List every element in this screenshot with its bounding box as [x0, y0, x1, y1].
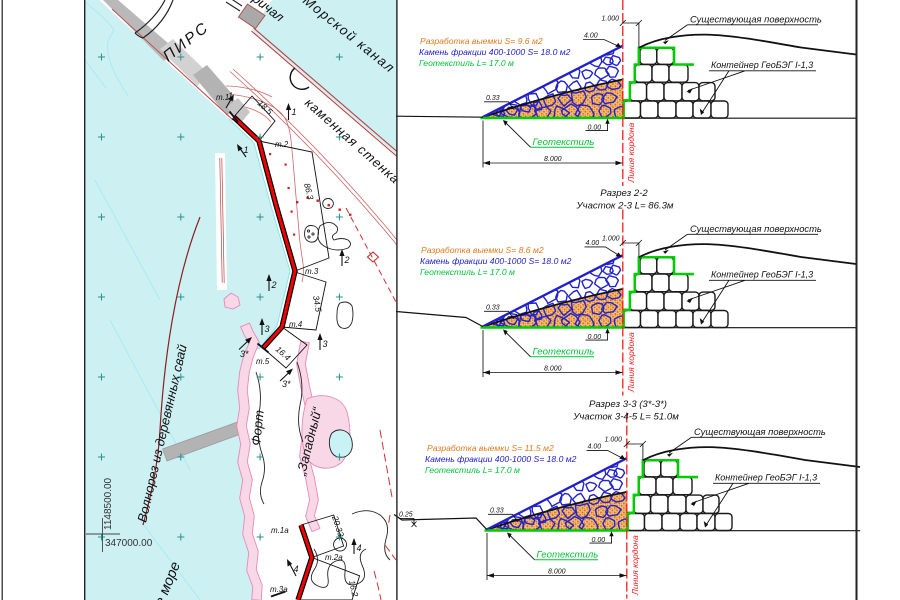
svg-text:Камень фракции 400-1000 S= 18: Камень фракции 400-1000 S= 18.0 м2: [420, 256, 572, 266]
svg-text:Участок 2-3 L= 86.3м: Участок 2-3 L= 86.3м: [575, 201, 673, 212]
svg-text:Геотекстиль L= 17.0 м: Геотекстиль L= 17.0 м: [425, 465, 520, 475]
svg-text:1: 1: [228, 91, 233, 101]
svg-text:4.00: 4.00: [584, 33, 598, 40]
svg-text:347000.00: 347000.00: [105, 538, 153, 549]
svg-text:4.00: 4.00: [586, 240, 600, 247]
svg-text:т.1а: т.1а: [271, 526, 289, 535]
svg-text:1148500.00: 1148500.00: [103, 477, 114, 530]
svg-text:Разрез 2-2: Разрез 2-2: [600, 188, 648, 199]
svg-text:1: 1: [292, 107, 297, 117]
svg-text:4: 4: [294, 564, 299, 574]
svg-text:3: 3: [323, 339, 328, 349]
svg-text:Участок 3-4-5 L= 51.0м: Участок 3-4-5 L= 51.0м: [572, 412, 679, 423]
svg-text:Разработка выемки S= 11.5 м2: Разработка выемки S= 11.5 м2: [427, 443, 554, 453]
svg-text:т.4: т.4: [289, 320, 303, 329]
svg-text:т.2: т.2: [275, 140, 289, 149]
svg-text:Геотекстиль L= 17.0 м: Геотекстиль L= 17.0 м: [419, 58, 514, 68]
svg-text:4.00: 4.00: [588, 444, 602, 451]
svg-text:3*: 3*: [240, 349, 249, 359]
svg-text:т.3: т.3: [305, 267, 319, 276]
svg-text:0.25: 0.25: [399, 512, 413, 519]
svg-text:Геотекстиль L= 17.0 м: Геотекстиль L= 17.0 м: [420, 267, 515, 277]
svg-text:3*: 3*: [282, 379, 291, 389]
svg-text:1: 1: [244, 145, 249, 155]
svg-text:т.3а: т.3а: [270, 585, 288, 594]
svg-text:1.000: 1.000: [605, 437, 623, 444]
svg-text:1.000: 1.000: [602, 236, 620, 243]
svg-text:т.2а: т.2а: [325, 553, 343, 562]
svg-text:Камень фракции 400-1000 S= 18: Камень фракции 400-1000 S= 18.0 м2: [419, 47, 571, 57]
svg-text:2: 2: [271, 280, 277, 290]
svg-text:Разрез 3-3 (3*-3*): Разрез 3-3 (3*-3*): [589, 399, 667, 410]
svg-text:2: 2: [344, 255, 350, 265]
svg-text:Разработка выемки S= 9.6 м2: Разработка выемки S= 9.6 м2: [420, 36, 543, 46]
svg-text:4: 4: [357, 543, 362, 553]
svg-text:Разработка выемки S= 8.6 м2: Разработка выемки S= 8.6 м2: [421, 245, 544, 255]
svg-text:3: 3: [265, 324, 270, 334]
svg-text:т.5: т.5: [256, 357, 270, 366]
svg-text:Камень фракции 400-1000 S= 18: Камень фракции 400-1000 S= 18.0 м2: [425, 454, 577, 464]
svg-text:1.000: 1.000: [602, 16, 620, 23]
